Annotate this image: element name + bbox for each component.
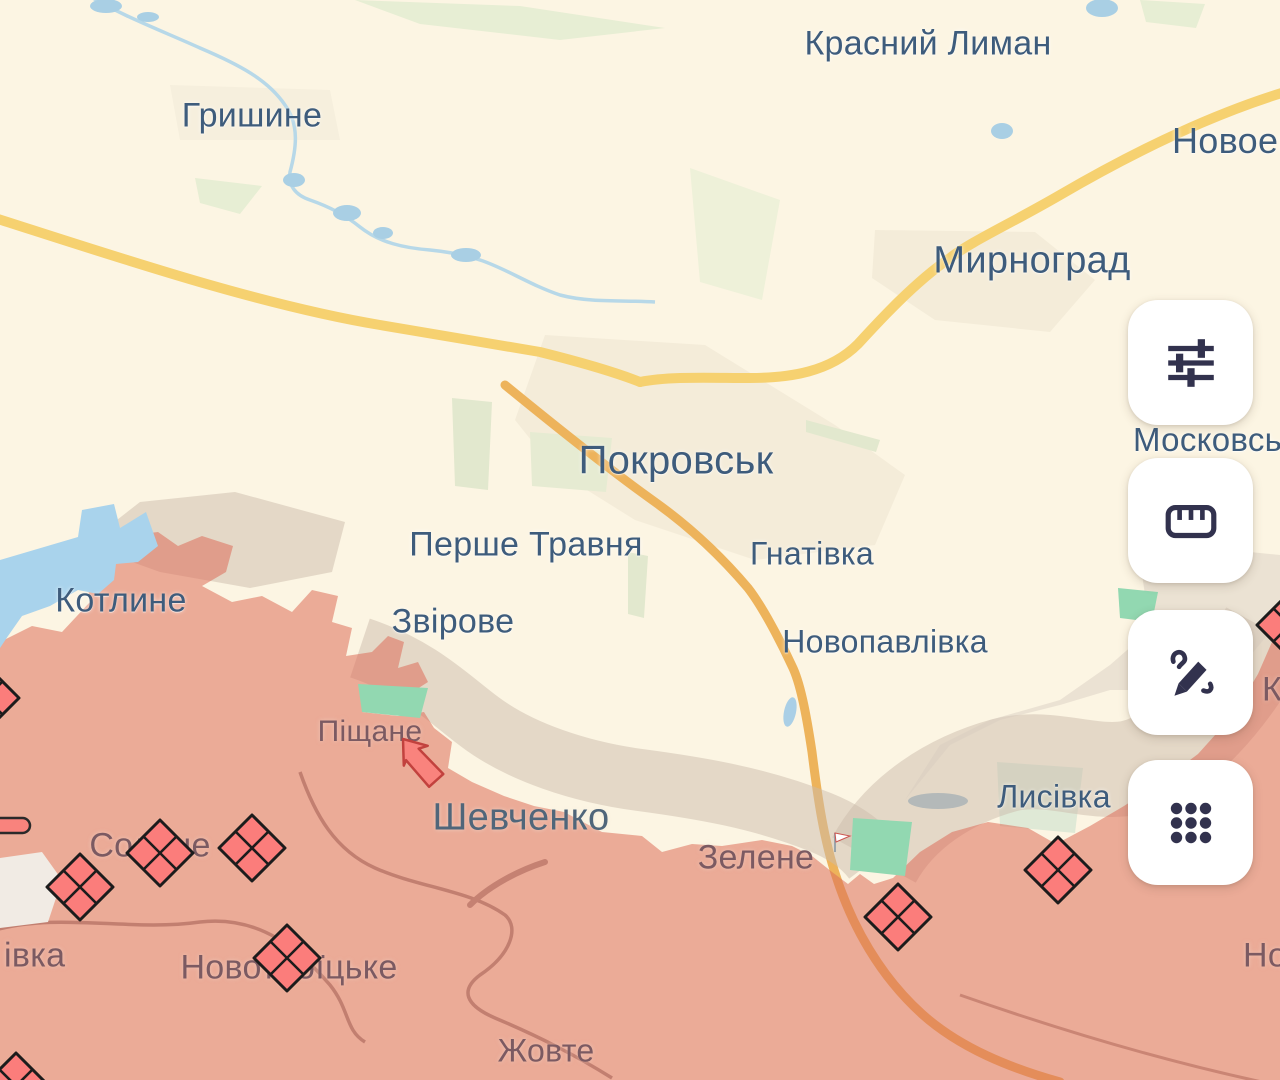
combat-diamond-marker-5[interactable]	[860, 879, 936, 955]
combat-diamond-marker-9[interactable]	[0, 1048, 54, 1080]
combat-diamond-marker-1[interactable]	[122, 815, 198, 891]
map-filters-button[interactable]	[1128, 300, 1253, 425]
map-apps-button[interactable]	[1128, 760, 1253, 885]
apps-grid-icon	[1162, 794, 1220, 852]
combat-diamond-marker-6[interactable]	[1020, 832, 1096, 908]
combat-diamond-marker-4[interactable]	[249, 920, 325, 996]
combat-diamond-marker-7[interactable]	[0, 660, 24, 736]
filters-sliders-icon	[1162, 334, 1220, 392]
combat-diamond-marker-8[interactable]	[1252, 587, 1280, 663]
combat-diamond-marker-3[interactable]	[42, 849, 118, 925]
map-ruler-button[interactable]	[1128, 458, 1253, 583]
map-draw-button[interactable]	[1128, 610, 1253, 735]
war-map-app: Красний ЛиманГришинеНовоекономічнеМирног…	[0, 0, 1280, 1080]
map-canvas[interactable]	[0, 0, 1280, 1080]
combat-diamond-marker-2[interactable]	[214, 810, 290, 886]
draw-pencil-icon	[1162, 644, 1220, 702]
ruler-icon	[1162, 492, 1220, 550]
